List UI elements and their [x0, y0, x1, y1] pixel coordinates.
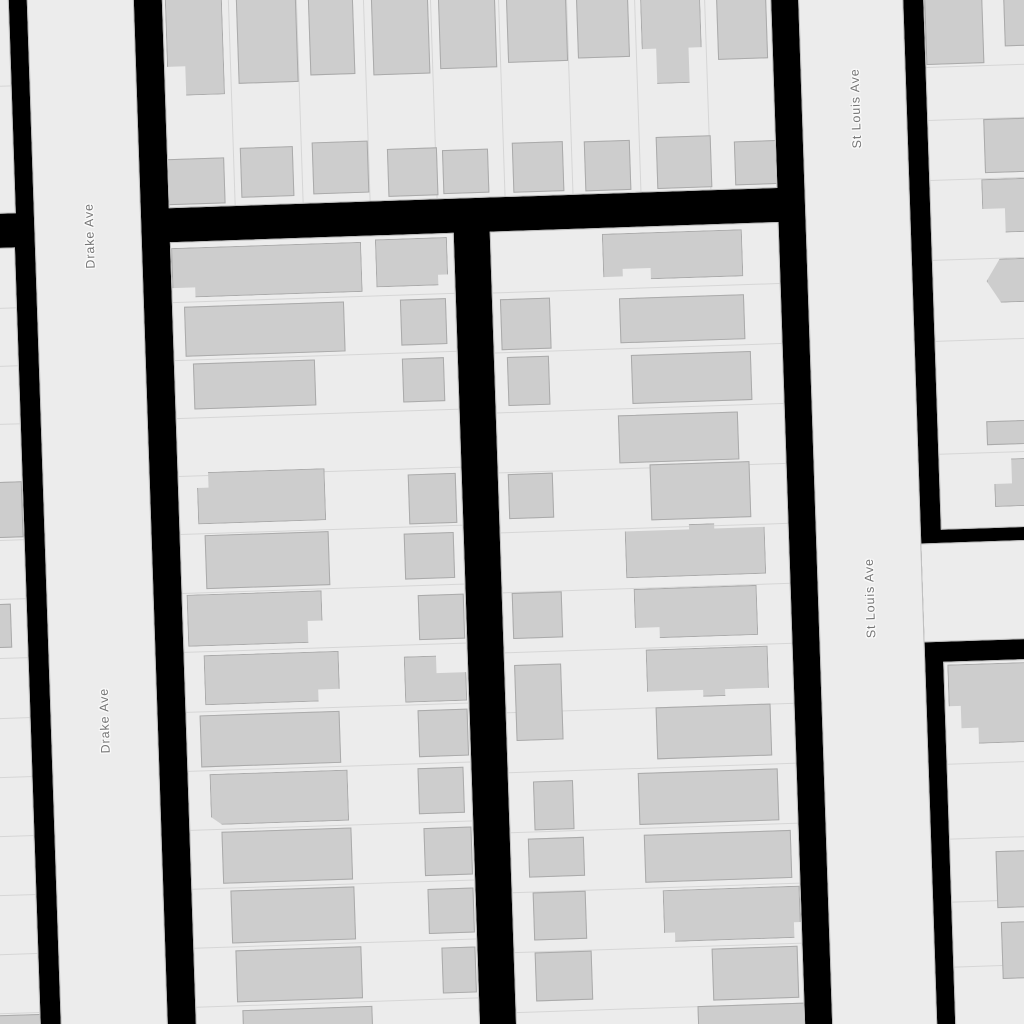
parcel-line	[177, 409, 461, 419]
building-footprint	[923, 0, 985, 65]
building-footprint	[715, 0, 768, 60]
parcel-line	[633, 0, 642, 194]
building-footprint	[442, 149, 489, 195]
building-footprint	[0, 481, 24, 538]
parcel-line	[0, 539, 26, 543]
building-footprint	[646, 646, 770, 699]
city-block-west-strip-north	[0, 0, 16, 217]
parcel-line	[939, 450, 1024, 455]
building-footprint	[986, 419, 1024, 445]
parcel-line	[497, 0, 506, 198]
building-footprint	[1002, 0, 1024, 46]
building-footprint	[204, 651, 341, 705]
building-footprint	[437, 0, 497, 69]
city-block-north-block	[161, 0, 777, 208]
building-footprint	[994, 457, 1024, 507]
building-footprint	[408, 473, 458, 525]
building-footprint	[164, 157, 225, 205]
building-footprint	[638, 768, 780, 825]
building-footprint	[404, 655, 467, 703]
parcel-line	[0, 307, 18, 311]
building-footprint	[533, 891, 588, 941]
building-footprint	[242, 1006, 374, 1024]
road-cross-street	[921, 539, 1024, 643]
parcel-line	[0, 365, 20, 369]
building-footprint	[631, 351, 753, 404]
building-footprint	[981, 177, 1024, 233]
building-footprint	[508, 473, 554, 519]
building-footprint	[512, 141, 565, 193]
building-footprint	[712, 946, 800, 1001]
building-footprint	[230, 886, 356, 943]
building-footprint	[618, 411, 740, 463]
parcel-line	[950, 835, 1024, 840]
street-label: Drake Ave	[97, 688, 113, 754]
building-footprint	[205, 531, 331, 589]
building-footprint	[312, 141, 370, 195]
building-footprint	[644, 830, 793, 883]
building-footprint	[197, 468, 327, 524]
building-footprint	[0, 604, 12, 649]
road-st-louis-ave	[797, 0, 938, 1024]
building-footprint	[375, 237, 449, 287]
building-footprint	[514, 663, 563, 741]
building-footprint	[307, 0, 355, 75]
parcel-line	[0, 423, 22, 427]
parcel-line	[0, 598, 28, 602]
building-footprint	[240, 146, 295, 198]
building-footprint	[418, 709, 470, 758]
building-footprint	[983, 117, 1024, 173]
building-footprint	[235, 946, 363, 1002]
building-footprint	[417, 767, 464, 814]
building-footprint	[370, 0, 431, 75]
building-footprint	[221, 827, 353, 883]
parcel-line	[0, 953, 39, 957]
building-footprint	[575, 0, 630, 59]
building-footprint	[986, 257, 1024, 303]
street-label: St Louis Ave	[847, 68, 864, 148]
building-footprint	[404, 532, 455, 580]
building-footprint	[505, 0, 568, 63]
city-block-west-strip-south	[0, 247, 43, 1024]
map-viewport[interactable]: Drake AveDrake AveSt Louis AveSt Louis A…	[0, 0, 1024, 1024]
building-footprint	[0, 1014, 43, 1024]
city-block-east-block-south	[943, 658, 1024, 1024]
building-footprint	[500, 298, 552, 351]
building-footprint	[649, 461, 751, 520]
building-footprint	[535, 951, 594, 1002]
building-footprint	[634, 585, 759, 639]
building-footprint	[663, 886, 802, 943]
building-footprint	[187, 590, 324, 646]
building-footprint	[200, 711, 342, 768]
parcel-line	[0, 85, 13, 89]
building-footprint	[400, 298, 447, 345]
building-footprint	[418, 594, 465, 641]
building-footprint	[625, 522, 767, 579]
city-block-east-block-north	[922, 0, 1024, 530]
road-drake-ave	[26, 0, 169, 1024]
building-footprint	[656, 704, 773, 760]
building-footprint	[947, 661, 1024, 745]
parcel-line	[0, 776, 34, 780]
building-footprint	[235, 0, 299, 84]
building-footprint	[639, 0, 703, 84]
building-footprint	[171, 242, 363, 298]
building-footprint	[996, 849, 1024, 909]
city-block-central-west-block	[170, 233, 481, 1024]
building-footprint	[402, 357, 445, 402]
building-footprint	[427, 887, 474, 934]
building-footprint	[533, 780, 575, 830]
map-world: Drake AveDrake AveSt Louis AveSt Louis A…	[0, 0, 1024, 1024]
parcel-line	[0, 894, 37, 898]
building-footprint	[602, 229, 743, 281]
building-footprint	[507, 356, 551, 406]
street-label: St Louis Ave	[862, 558, 879, 638]
building-footprint	[423, 827, 473, 877]
building-footprint	[210, 770, 350, 826]
building-footprint	[528, 837, 585, 878]
building-footprint	[184, 301, 346, 356]
parcel-line	[0, 657, 30, 661]
parcel-line	[0, 717, 32, 721]
parcel-line	[948, 760, 1024, 765]
building-footprint	[512, 591, 563, 639]
building-footprint	[1001, 919, 1024, 978]
city-block-central-east-block	[490, 222, 806, 1024]
building-footprint	[164, 0, 225, 96]
building-footprint	[584, 140, 632, 191]
parcel-line	[936, 337, 1024, 342]
building-footprint	[656, 135, 713, 189]
building-footprint	[193, 359, 316, 409]
street-label: Drake Ave	[82, 203, 98, 269]
parcel-line	[0, 835, 35, 839]
building-footprint	[734, 140, 778, 186]
building-footprint	[441, 946, 477, 993]
building-footprint	[387, 147, 439, 197]
building-footprint	[619, 294, 745, 343]
parcel-line	[227, 0, 236, 207]
parcel-line	[493, 283, 782, 294]
building-footprint	[697, 1003, 806, 1024]
